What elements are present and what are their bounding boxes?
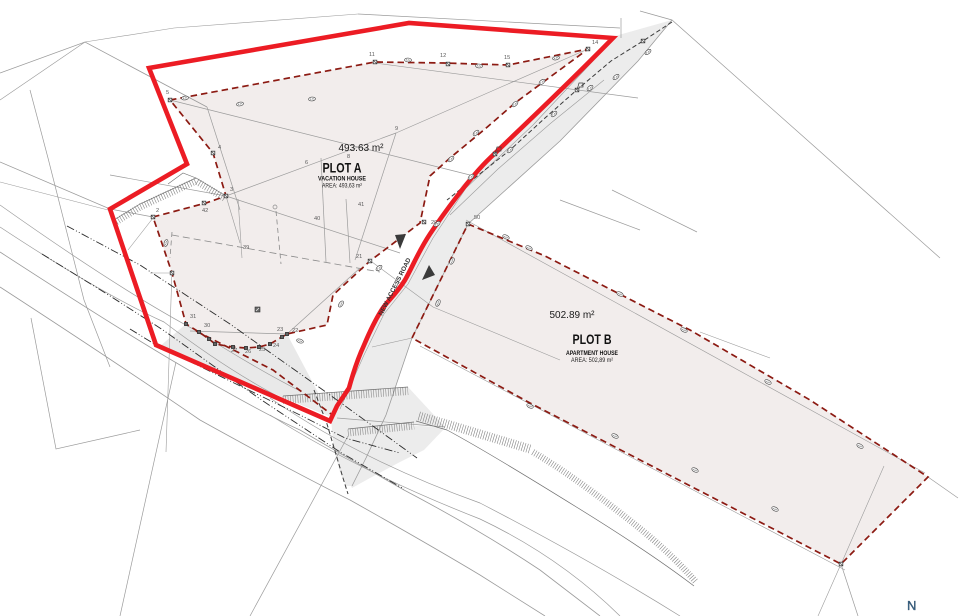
- svg-text:AREA: 493,63 m²: AREA: 493,63 m²: [322, 184, 362, 190]
- svg-text:15: 15: [504, 55, 510, 61]
- svg-text:5: 5: [166, 90, 169, 96]
- svg-text:22: 22: [292, 328, 298, 334]
- svg-text:PLOT A: PLOT A: [323, 161, 362, 176]
- svg-text:2: 2: [156, 208, 159, 214]
- svg-text:N: N: [907, 598, 916, 613]
- svg-text:30: 30: [204, 323, 210, 329]
- svg-text:PLOT B: PLOT B: [573, 332, 612, 347]
- svg-text:APARTMENT HOUSE: APARTMENT HOUSE: [566, 350, 618, 357]
- svg-text:50: 50: [474, 215, 480, 221]
- svg-text:39: 39: [243, 245, 249, 251]
- svg-text:VACATION HOUSE: VACATION HOUSE: [318, 175, 366, 182]
- svg-text:25: 25: [259, 347, 265, 353]
- svg-text:493.63 m²: 493.63 m²: [338, 143, 384, 154]
- svg-text:502.89 m²: 502.89 m²: [549, 310, 595, 321]
- svg-text:3: 3: [230, 187, 233, 193]
- svg-text:8: 8: [347, 154, 350, 160]
- svg-text:6: 6: [305, 160, 308, 166]
- svg-text:11: 11: [369, 52, 375, 58]
- svg-text:AREA: 502,89 m²: AREA: 502,89 m²: [571, 358, 613, 364]
- svg-text:23: 23: [277, 327, 283, 333]
- svg-text:14: 14: [592, 40, 598, 46]
- svg-text:21: 21: [356, 254, 362, 260]
- svg-text:31: 31: [190, 314, 196, 320]
- svg-text:24: 24: [273, 343, 279, 349]
- svg-text:40: 40: [314, 216, 320, 222]
- svg-text:42: 42: [202, 208, 208, 214]
- svg-text:26: 26: [245, 349, 251, 355]
- svg-text:27: 27: [231, 348, 237, 354]
- svg-text:41: 41: [358, 202, 364, 208]
- svg-text:9: 9: [395, 126, 398, 132]
- svg-text:12: 12: [440, 53, 446, 59]
- svg-text:4: 4: [218, 145, 221, 151]
- svg-text:20: 20: [431, 220, 437, 226]
